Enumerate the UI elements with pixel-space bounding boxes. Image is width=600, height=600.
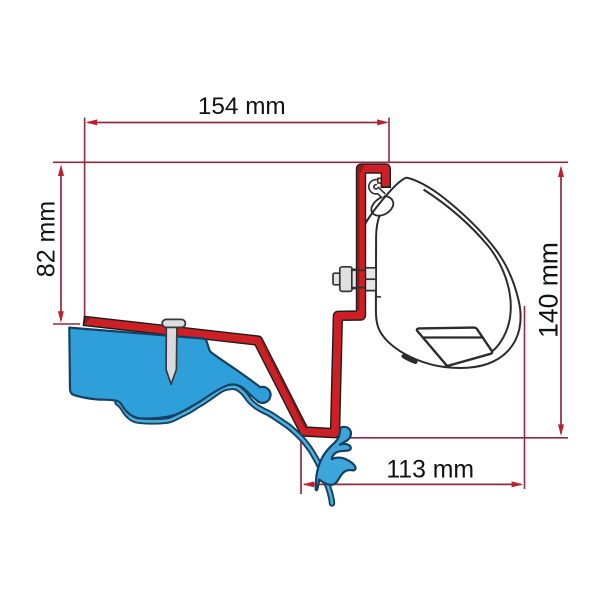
svg-text:140 mm: 140 mm: [534, 242, 564, 338]
svg-text:154 mm: 154 mm: [198, 93, 286, 120]
svg-text:113 mm: 113 mm: [386, 457, 474, 484]
svg-text:82 mm: 82 mm: [33, 201, 61, 277]
